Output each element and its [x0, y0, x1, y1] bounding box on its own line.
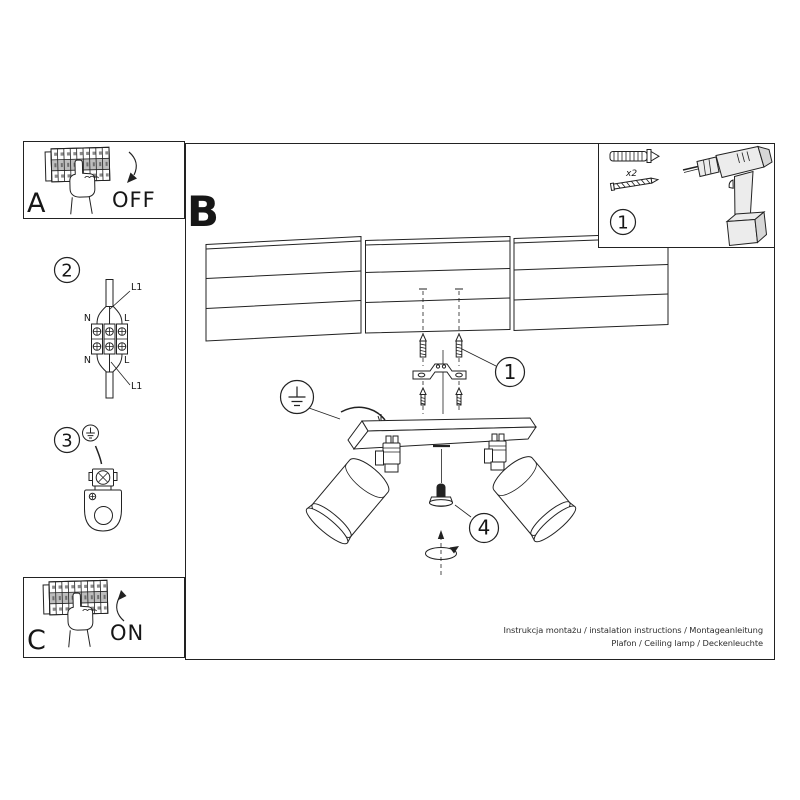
step-badge-adjust: 4 — [470, 514, 499, 543]
power-on-label: ON — [110, 621, 144, 645]
rotation-arrow-icon — [426, 530, 460, 577]
supply-cable-top — [106, 280, 113, 307]
wire-label-l1-top: L1 — [131, 282, 142, 293]
terminal-column-n — [92, 324, 103, 354]
step-badge-mount: 1 — [496, 358, 525, 387]
svg-text:3: 3 — [61, 431, 72, 452]
quantity-note: x2 — [625, 169, 637, 179]
terminal-column-l — [117, 324, 128, 354]
footer-line-1: Instrukcja montażu / instalation instruc… — [504, 625, 763, 635]
ceiling-lamp-drawing: 4 — [302, 414, 579, 577]
spot-head-left — [302, 452, 395, 548]
mounting-screw-icon — [456, 334, 462, 357]
bracket-screw-icon — [420, 388, 426, 405]
terminal-column-l1 — [104, 324, 115, 354]
panel-breaker-on: C ON — [24, 578, 185, 658]
mounting-bracket-icon — [413, 364, 466, 379]
frame-c-label: C — [27, 625, 46, 656]
wall-plug-icon — [610, 150, 659, 163]
step-number: 1 — [617, 213, 628, 234]
instruction-sheet: B x2 1 — [0, 0, 800, 800]
breaker-panel-icon — [45, 147, 111, 215]
arrow-down-icon — [127, 152, 137, 183]
power-off-label: OFF — [112, 188, 156, 212]
frame-tools: x2 1 — [599, 144, 775, 248]
ceiling-planks-drawing — [206, 233, 668, 341]
mounting-screw-icon — [420, 334, 426, 357]
wire-label-l1-bottom: L1 — [131, 381, 142, 392]
arrow-up-icon — [117, 590, 127, 621]
bracket-screw-icon — [456, 388, 462, 405]
lamp-base — [348, 418, 536, 449]
step-badge-wiring: 2 — [55, 258, 80, 283]
ground-symbol-icon — [281, 381, 314, 414]
footer-text: Instrukcja montażu / instalation instruc… — [504, 625, 763, 648]
ground-callout — [281, 381, 386, 421]
step-badge-grounding: 3 — [55, 428, 80, 453]
breaker-panel-icon — [43, 580, 109, 648]
svg-text:2: 2 — [61, 261, 72, 282]
wiring-diagram: 2 N L L1 N L L1 — [55, 258, 143, 399]
wire-label-n-top: N — [84, 313, 91, 324]
svg-text:1: 1 — [504, 360, 517, 384]
grounding-step: 3 — [55, 425, 122, 531]
frame-a-label: A — [27, 188, 46, 219]
ground-terminal-icon — [85, 469, 122, 531]
footer-line-2: Plafon / Ceiling lamp / Deckenleuchte — [611, 638, 763, 648]
panel-breaker-off: A OFF — [24, 142, 185, 220]
locking-knob-icon — [430, 484, 453, 507]
wire-label-n-bottom: N — [84, 355, 91, 366]
wire-label-l-top: L — [124, 313, 130, 324]
main-frame-label: B — [187, 187, 219, 236]
instruction-drawing: B x2 1 — [0, 0, 800, 800]
ground-symbol-icon — [83, 425, 99, 441]
supply-cable-bottom — [106, 372, 113, 398]
wire-label-l-bottom: L — [124, 355, 130, 366]
svg-text:4: 4 — [478, 516, 491, 540]
